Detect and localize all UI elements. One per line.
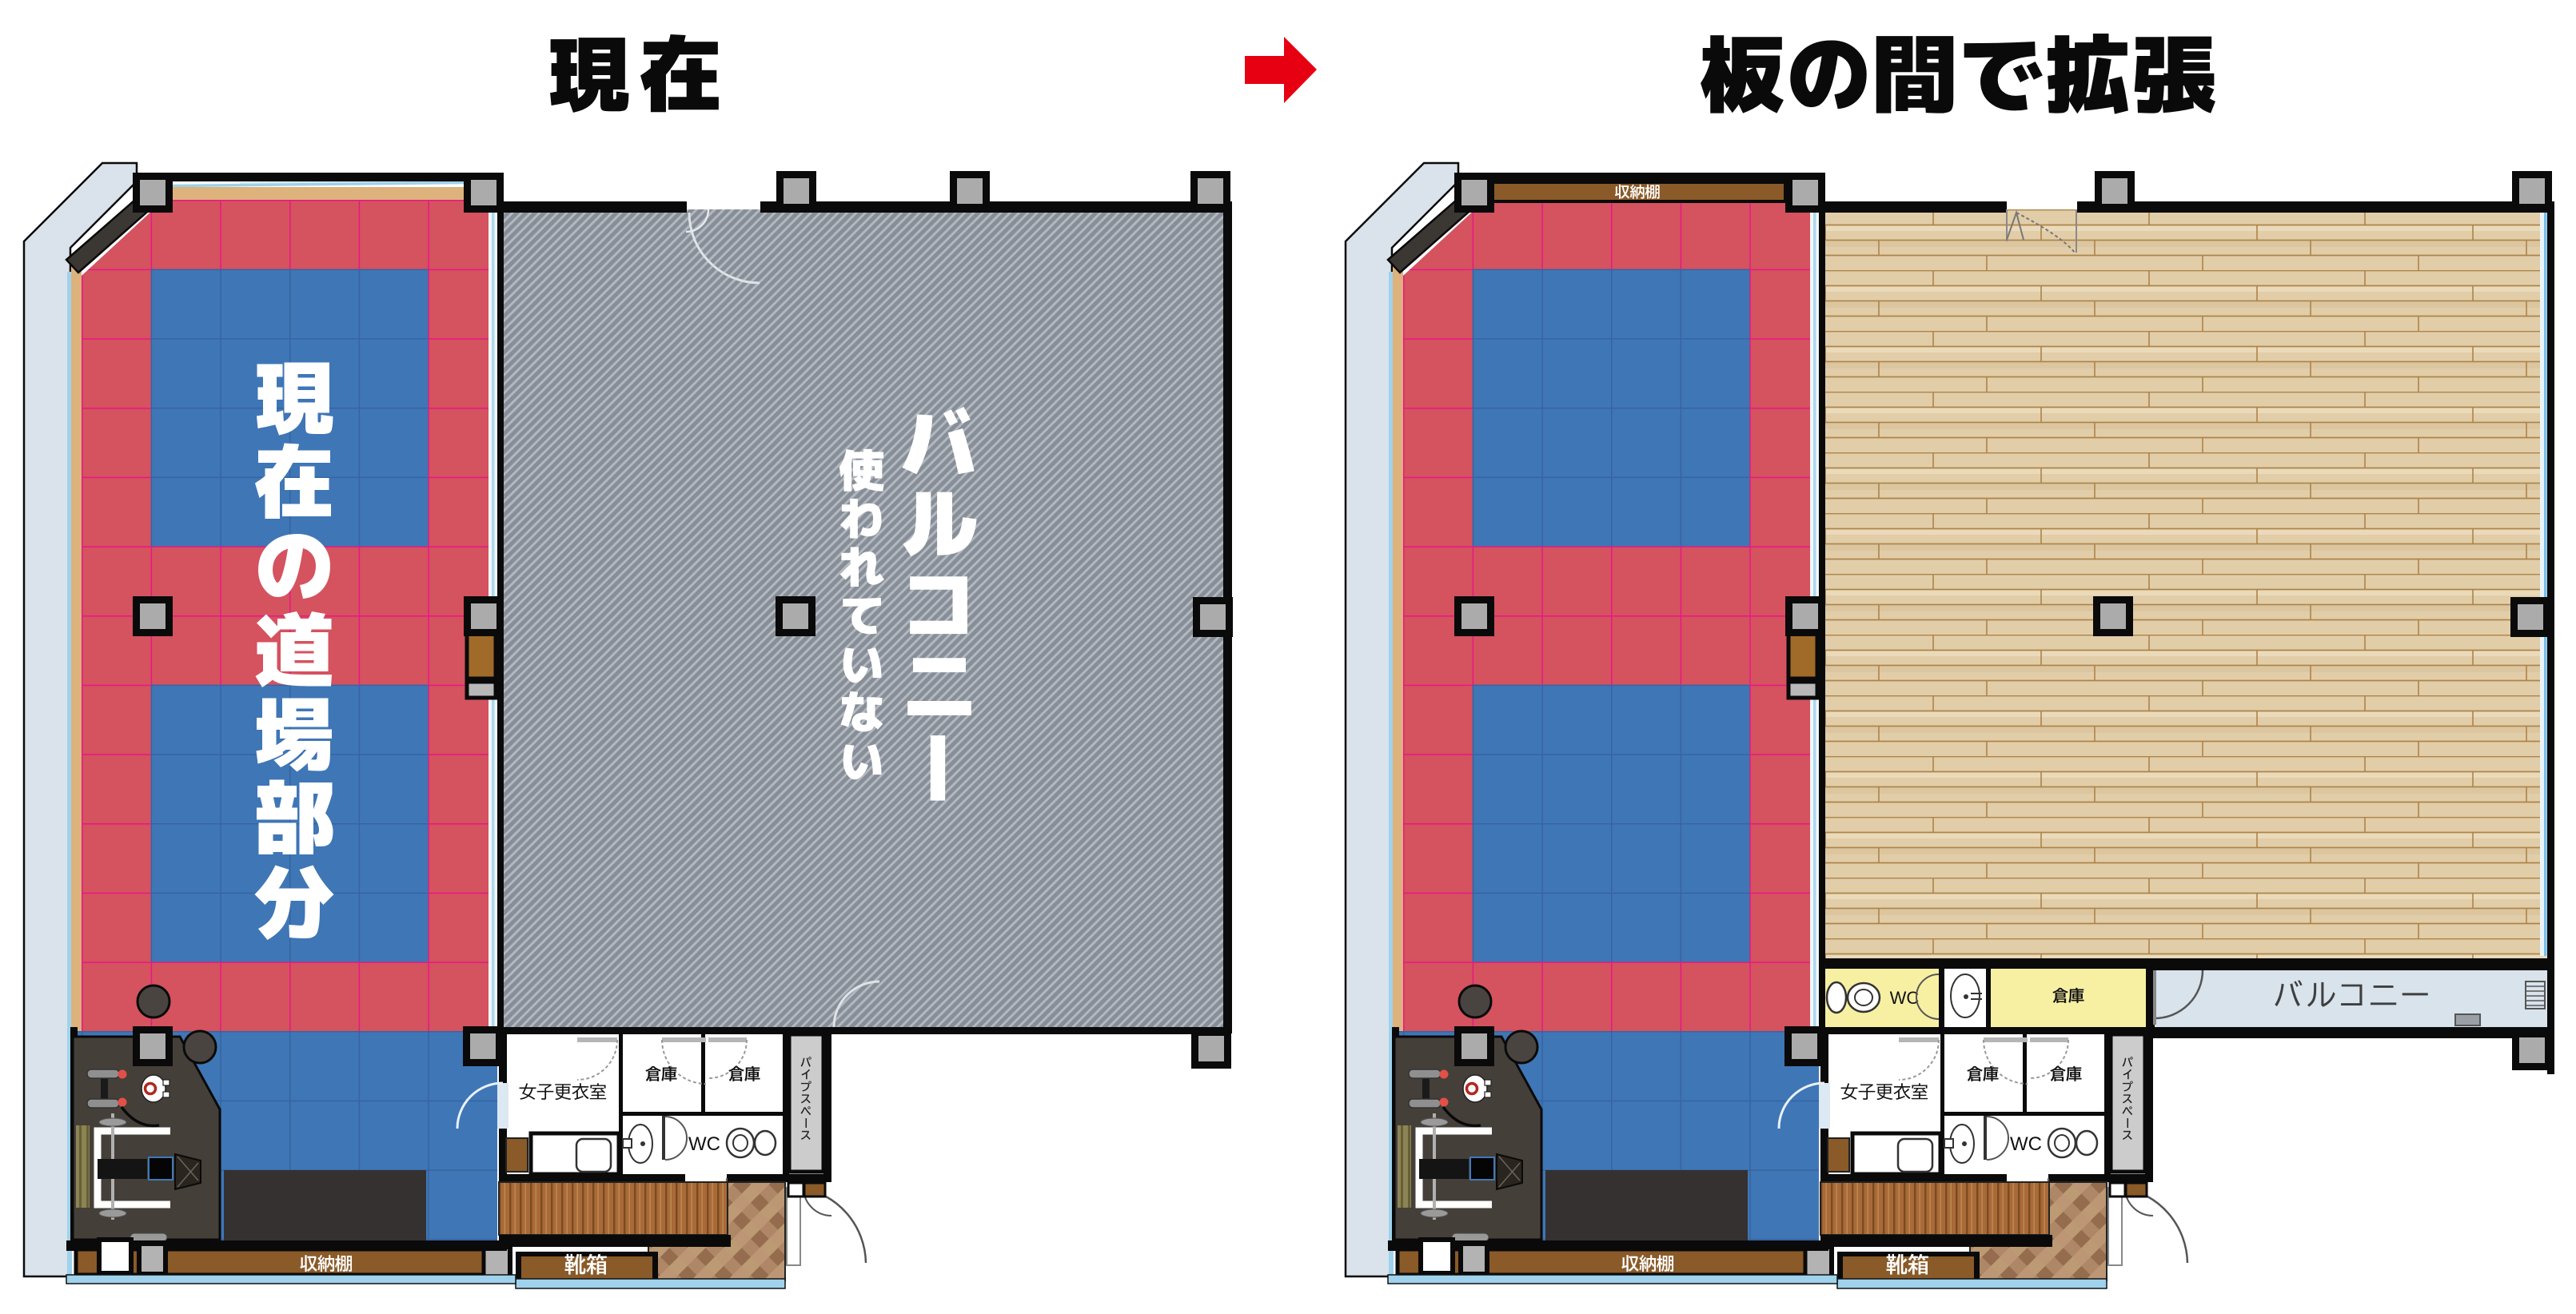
svg-text:WC: WC (1890, 988, 1920, 1008)
svg-text:WC: WC (2010, 1133, 2042, 1155)
svg-text:WC: WC (688, 1133, 720, 1155)
